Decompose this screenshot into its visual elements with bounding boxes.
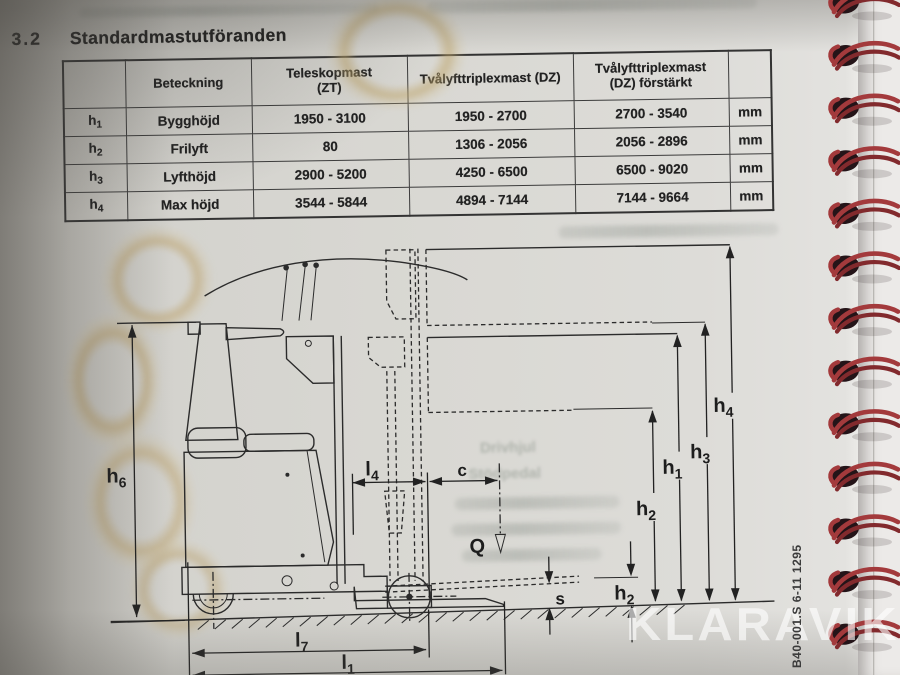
- row-symbol: h2: [64, 136, 126, 165]
- ground-hatch-mark: [368, 615, 379, 624]
- section-number: 3.2: [11, 29, 42, 49]
- cell-dz: 1950 - 2700: [408, 101, 574, 132]
- cell-unit: mm: [729, 98, 772, 127]
- cell-unit: mm: [729, 126, 772, 155]
- row-designation: Max höjd: [127, 190, 253, 220]
- ground-hatch-mark: [266, 618, 277, 627]
- cell-dz-forstarkt: 2700 - 3540: [574, 98, 729, 128]
- cell-dz-forstarkt: 7144 - 9664: [575, 182, 730, 213]
- ground-hatch-mark: [453, 612, 464, 621]
- ground-hatch-mark: [521, 610, 532, 619]
- cell-dz-forstarkt: 2056 - 2896: [574, 126, 729, 156]
- spiral-binding: [810, 0, 900, 675]
- cell-dz-forstarkt: 6500 - 9020: [574, 154, 729, 184]
- cell-unit: mm: [729, 154, 772, 183]
- ground-hatch-mark: [198, 620, 209, 629]
- ground-hatch-mark: [232, 619, 243, 628]
- ground-hatch-mark: [436, 613, 447, 622]
- dim-label-l7: l7: [295, 629, 309, 654]
- ghost-text-smudge: [427, 0, 757, 13]
- row-designation: Frilyft: [126, 134, 252, 164]
- header-triplex-dz: Tvålyfttriplexmast (DZ): [407, 53, 574, 103]
- cell-unit: mm: [730, 182, 773, 211]
- row-designation: Bygghöjd: [126, 106, 252, 136]
- dim-label-l4: l4: [365, 458, 379, 483]
- dim-label-h2-lower: h2: [614, 582, 635, 607]
- row-designation: Lyfthöjd: [127, 162, 253, 192]
- header-triplex-dz-forstarkt: Tvålyfttriplexmast(DZ) förstärkt: [573, 51, 729, 101]
- forklift-dimension-diagram: h6 h4 h3 h1 h2 h2 s l4 c Q l7 l1: [29, 218, 806, 675]
- ground-hatch-mark: [606, 607, 617, 616]
- binding-ring: [830, 43, 899, 73]
- dim-label-s: s: [555, 589, 565, 608]
- ground-hatch-mark: [657, 606, 668, 615]
- binding-ring: [830, 201, 899, 231]
- header-teleskopmast: Teleskopmast(ZT): [251, 56, 408, 106]
- dim-label-h1: h1: [662, 457, 683, 482]
- header-empty: [63, 60, 126, 108]
- row-symbol: h3: [65, 164, 127, 193]
- binding-ring: [830, 517, 899, 547]
- ground-hatch-mark: [283, 618, 294, 627]
- page-content: 3.2Standardmastutföranden Beteckning Tel…: [0, 0, 900, 675]
- cell-zt: 3544 - 5844: [253, 187, 409, 218]
- ground-hatch-mark: [470, 612, 481, 621]
- ground-hatch-mark: [215, 620, 226, 629]
- ground-hatch-mark: [334, 616, 345, 625]
- binding-rings: [830, 0, 899, 652]
- binding-ring: [830, 148, 899, 178]
- cell-dz: 4894 - 7144: [409, 185, 575, 216]
- binding-ring: [830, 306, 899, 336]
- header-designation: Beteckning: [125, 58, 252, 107]
- dim-label-c: c: [457, 461, 467, 480]
- section-heading: 3.2Standardmastutföranden: [11, 25, 287, 50]
- doc-code: B40-001.S 6-11 1295: [790, 544, 804, 668]
- ground-hatch-mark: [249, 619, 260, 628]
- ground-hatch-mark: [555, 609, 566, 618]
- ground-hatch-mark: [640, 606, 651, 615]
- cell-dz: 4250 - 6500: [408, 157, 574, 188]
- dim-label-h3: h3: [690, 441, 711, 466]
- binding-ring: [830, 622, 899, 652]
- manual-page-photo: 3.2Standardmastutföranden Beteckning Tel…: [0, 0, 900, 675]
- row-symbol: h1: [64, 108, 126, 137]
- binding-ring: [830, 254, 899, 284]
- dim-label-h4: h4: [713, 395, 734, 420]
- ground-hatch-mark: [300, 617, 311, 626]
- binding-ring: [830, 0, 899, 21]
- ground-hatch-mark: [487, 611, 498, 620]
- header-unit: [728, 50, 772, 98]
- ground-hatch-mark: [385, 614, 396, 623]
- ground-hatch-mark: [589, 608, 600, 617]
- ghost-text-smudge: [79, 3, 379, 18]
- forklift-body: [117, 319, 432, 613]
- binding-ring: [830, 359, 899, 389]
- dimension-labels: h6 h4 h3 h1 h2 h2 s l4 c Q l7 l1: [105, 395, 737, 675]
- cell-zt: 1950 - 3100: [252, 103, 408, 133]
- load-wheel: [382, 572, 457, 623]
- dim-label-h6: h6: [106, 465, 127, 490]
- ground-hatch-mark: [674, 605, 685, 614]
- cell-zt: 80: [252, 131, 408, 161]
- ground-hatch-mark: [317, 617, 328, 626]
- overhead-guard: [204, 257, 468, 322]
- dim-label-l1: l1: [341, 652, 355, 675]
- cell-dz: 1306 - 2056: [408, 129, 574, 160]
- back-page-edge-line: [873, 0, 874, 675]
- dim-label-h2-upper: h2: [636, 498, 657, 523]
- mast-spec-table: Beteckning Teleskopmast(ZT) Tvålyfttripl…: [62, 49, 774, 222]
- load-label-q: Q: [469, 536, 485, 558]
- cell-zt: 2900 - 5200: [252, 159, 408, 189]
- binding-ring: [830, 464, 899, 494]
- ground-line: [111, 601, 775, 631]
- section-title: Standardmastutföranden: [70, 25, 287, 48]
- ground-hatch-mark: [351, 615, 362, 624]
- binding-ring: [830, 569, 899, 599]
- ground-hatch-mark: [572, 608, 583, 617]
- binding-ring: [830, 411, 899, 441]
- row-symbol: h4: [65, 192, 127, 221]
- binding-ring: [830, 96, 899, 126]
